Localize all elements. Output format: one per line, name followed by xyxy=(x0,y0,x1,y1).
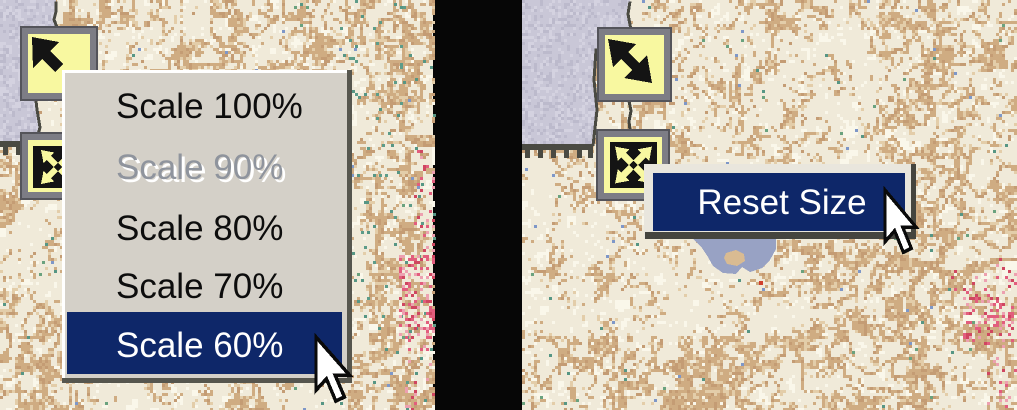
svg-text:Scale 100%: Scale 100% xyxy=(116,87,303,126)
svg-text:Scale 70%: Scale 70% xyxy=(116,267,283,306)
svg-text:Scale 80%: Scale 80% xyxy=(116,209,283,248)
svg-text:Scale 90%: Scale 90% xyxy=(116,148,283,187)
svg-text:Reset Size: Reset Size xyxy=(697,183,866,222)
svg-text:Scale 60%: Scale 60% xyxy=(116,326,283,365)
